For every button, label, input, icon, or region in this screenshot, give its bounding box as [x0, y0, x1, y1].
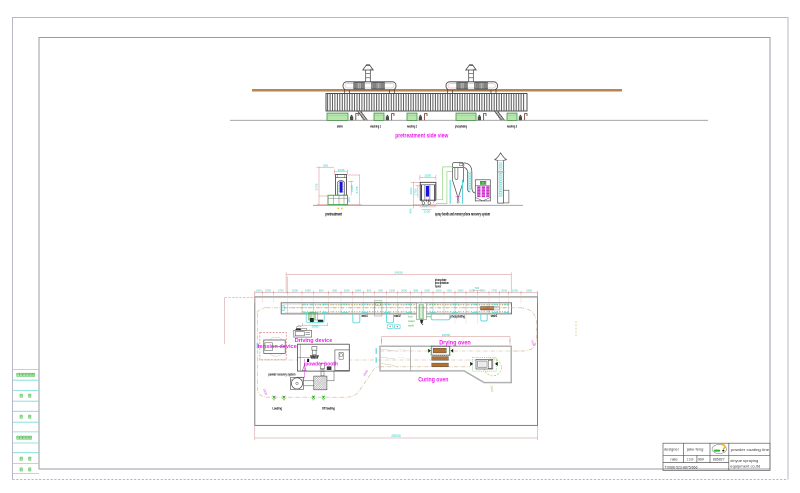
svg-text:800: 800 — [367, 288, 372, 292]
svg-text:washing 1: washing 1 — [370, 124, 382, 129]
svg-text:phosphating: phosphating — [451, 315, 466, 319]
svg-text:1450: 1450 — [305, 288, 311, 292]
svg-text:2000: 2000 — [458, 288, 464, 292]
svg-text:1848: 1848 — [355, 288, 361, 292]
svg-text:2750: 2750 — [491, 288, 497, 292]
svg-text:25000: 25000 — [391, 434, 401, 438]
svg-text:phosphating: phosphating — [455, 124, 467, 129]
svg-text:jake feng: jake feng — [686, 448, 704, 452]
svg-text:skin: skin — [337, 124, 344, 129]
svg-text:2000: 2000 — [344, 288, 350, 292]
svg-text:Loading: Loading — [272, 406, 282, 410]
svg-text:1500: 1500 — [436, 288, 442, 292]
svg-text:rate: rate — [670, 457, 677, 461]
svg-text:06/M: 06/M — [698, 457, 704, 461]
svg-text:powder coating line: powder coating line — [731, 447, 769, 452]
svg-text:1100: 1100 — [424, 209, 431, 213]
svg-text:500: 500 — [475, 286, 480, 290]
svg-text:2250: 2250 — [265, 288, 271, 292]
svg-text:1700: 1700 — [413, 188, 417, 195]
svg-text:wash1: wash1 — [361, 314, 368, 318]
svg-text:800: 800 — [378, 288, 383, 292]
svg-text:tank: tank — [408, 323, 415, 327]
svg-text:1535: 1535 — [350, 185, 354, 192]
svg-text:1500: 1500 — [512, 288, 518, 292]
svg-text:equipment co,ltd: equipment co,ltd — [730, 463, 760, 468]
svg-text:2600: 2600 — [409, 187, 413, 194]
svg-text:designer: designer — [664, 448, 680, 452]
svg-text:Curing oven: Curing oven — [418, 377, 448, 383]
svg-text:wash2: wash2 — [394, 314, 401, 318]
svg-text:800: 800 — [481, 288, 486, 292]
svg-text:wash3: wash3 — [490, 314, 497, 318]
svg-text:800: 800 — [414, 288, 419, 292]
svg-text:washing 3: washing 3 — [506, 124, 517, 129]
svg-text:350: 350 — [323, 164, 328, 168]
svg-text:800: 800 — [447, 288, 452, 292]
svg-text:22500: 22500 — [442, 333, 451, 337]
svg-text:3550: 3550 — [424, 174, 431, 178]
svg-text:T:0086-523-8875/666: T:0086-523-8875/666 — [665, 465, 698, 469]
svg-text:tower: tower — [435, 284, 442, 288]
svg-text:2000: 2000 — [490, 385, 495, 392]
svg-text:1500: 1500 — [256, 288, 262, 292]
svg-text:2000: 2000 — [292, 288, 298, 292]
svg-text:1:100: 1:100 — [687, 457, 693, 461]
svg-text:2000: 2000 — [424, 288, 430, 292]
svg-text:powder recovery system: powder recovery system — [268, 373, 295, 377]
svg-text:pretreatment side view: pretreatment side view — [395, 134, 448, 140]
svg-text:powder booth: powder booth — [305, 362, 338, 368]
svg-text:hot: hot — [408, 314, 413, 318]
svg-text:pretreatment: pretreatment — [325, 212, 342, 217]
svg-text:spray booth and monocyclone re: spray booth and monocyclone recovery sys… — [435, 212, 490, 217]
svg-text:450: 450 — [409, 208, 413, 213]
svg-text:Off loading: Off loading — [322, 406, 335, 410]
svg-text:2000: 2000 — [501, 288, 507, 292]
svg-text:1750: 1750 — [278, 288, 284, 292]
svg-text:washing 2: washing 2 — [406, 124, 417, 129]
svg-text:1500: 1500 — [312, 324, 319, 328]
svg-text:3725: 3725 — [315, 183, 319, 190]
svg-text:3725: 3725 — [355, 186, 359, 193]
svg-text:800: 800 — [319, 288, 324, 292]
svg-text:1500: 1500 — [389, 288, 395, 292]
svg-text:24250: 24250 — [394, 271, 403, 275]
svg-text:xinyue spraying: xinyue spraying — [730, 458, 758, 463]
svg-text:885827: 885827 — [713, 457, 725, 461]
svg-text:tension device: tension device — [258, 344, 297, 350]
svg-text:2000: 2000 — [526, 288, 532, 292]
svg-text:800: 800 — [333, 288, 338, 292]
svg-text:water: water — [408, 319, 415, 323]
svg-text:2000: 2000 — [401, 288, 407, 292]
svg-text:1938: 1938 — [338, 168, 345, 172]
svg-text:Driving device: Driving device — [295, 338, 333, 344]
